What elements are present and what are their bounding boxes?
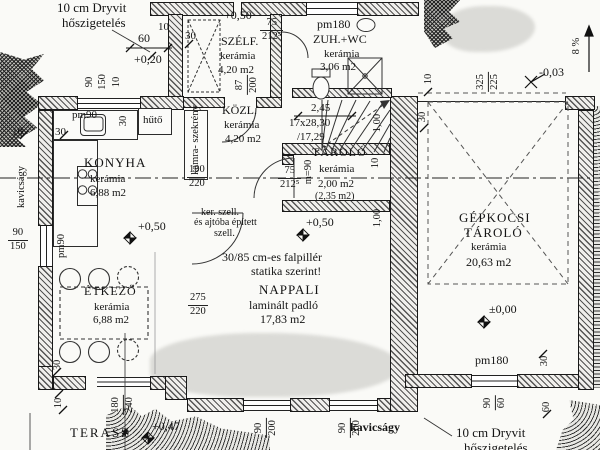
leader-lines [112,30,452,436]
dim-label: 1,00 [373,114,384,132]
room-finish: kerámia [471,242,506,253]
room-finish: laminált padló [249,299,318,311]
vent-note: szell. [214,229,235,239]
window-label: pm90 [72,110,97,121]
parapet-label: m=90 [304,160,315,185]
room-name: ÉTKEZŐ [84,285,137,297]
pillar-note: statika szerint! [251,265,321,277]
insulation-note-top: 10 cm Dryvit [57,1,126,14]
room-name: KÖZL. [222,104,257,116]
dim-label: 10 [12,127,23,138]
room-area: 6,88 m2 [93,315,129,326]
dim-label: 90 [85,77,96,88]
dim-label: 30 [53,360,64,371]
room-name: GÉPKOCSI [459,211,531,224]
room-finish: kerámia [90,174,125,185]
room-area-alt: (2,35 m2) [315,192,354,202]
level-label: +0,50 [138,220,166,232]
room-finish: kerámia [94,302,129,313]
room-name: SZÉLF. [221,35,258,47]
room-name: TÁROLÓ [312,146,367,158]
stair-steps-label: 17x28,30 [289,118,330,129]
room-area: 6,88 m2 [90,188,126,199]
room-area: 17,83 m2 [260,313,305,325]
dim-label: 30 [55,127,66,138]
wc-bowl [312,69,330,99]
dim-label: 10 [371,158,382,169]
room-area: 2,00 m2 [318,179,354,190]
room-area: 3,06 m2 [320,62,356,73]
dim-label: 30 [540,356,551,367]
level-label: ±0,00 [489,303,517,315]
gravel-label: kavicságy [17,166,28,208]
room-area: 20,63 m2 [466,256,511,268]
room-area: 4,20 m2 [225,134,261,145]
window-size-label: 90200 [253,418,279,438]
window-label: pm180 [317,18,350,30]
dim-label: 30 [185,31,196,42]
slope-arrow [585,26,593,72]
room-finish: kerámia [224,120,259,131]
door-size-label: 87200 [234,75,260,95]
dim-label: 60 [138,32,150,44]
washbasin [357,19,375,32]
fridge-label: hűtő [143,115,163,126]
stair-width-label: 2,45 [311,103,330,114]
insulation-note-bottom: 10 cm Dryvit [456,426,525,439]
window-label: pm90 [57,234,68,258]
dim-label: 10 [112,77,123,88]
vent-note: és ajtóba épített [194,218,257,228]
room-finish: kerámia [319,164,354,175]
room-name: TÁROLÓ [464,226,523,239]
window-label: pm180 [475,354,508,366]
dim-label: 10 [54,398,65,409]
dim-label: 150 [98,74,109,90]
level-label: +0,20 [134,53,162,65]
window-size-label: 9060 [482,396,508,411]
dim-label: 10 [424,74,435,85]
dim-label: 10 [158,22,169,33]
floor-plan: 10 cm Dryvit hőszigetelés 60 +0,20 10 30… [0,0,600,450]
garage-door-size-label: 325225 [475,72,501,92]
terrace-door-size-label: 180240 [110,395,136,415]
window-size-label: 90 150 [8,227,28,253]
lintel-size-label: 100 220 [187,164,207,190]
dim-label: 1,00 [373,209,384,227]
pillar-note: 30/85 cm-es falpillér [222,251,322,263]
door-size-label: 75 212⁵ [278,165,301,191]
level-label: +0,50 [224,9,252,21]
room-name: KONYHA [84,156,146,169]
level-label: -0,03 [539,66,564,78]
slope-label: 8 % [572,38,583,55]
dim-label: 30 [418,112,429,123]
stair-rise-label: /17,29 [297,132,325,143]
room-name: ZUH.+WC [313,33,367,45]
level-label: +0,47 [152,420,180,432]
level-label: +0,50 [306,216,334,228]
dim-label: 60 [542,402,553,413]
insulation-note-bottom: hőszigetelés [464,441,528,450]
dim-label: 30 [119,116,130,127]
plant-symbol-icon: ✱ [121,429,129,439]
window-size-label: 275 220 [188,292,208,318]
room-name: NAPPALI [259,283,320,296]
insulation-note-top: hőszigetelés [62,16,126,29]
room-finish: kerámia [324,49,359,60]
gravel-label: kavicságy [350,421,400,433]
door-size-label: 75 212⁵ [260,17,283,43]
room-finish: kerámia [220,51,255,62]
